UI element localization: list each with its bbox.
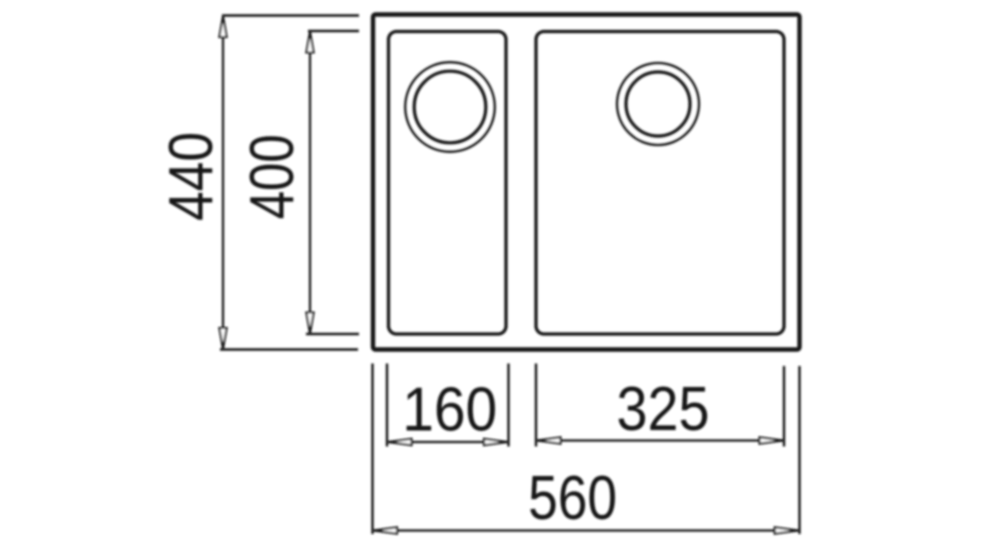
svg-text:160: 160 <box>402 376 497 445</box>
svg-text:440: 440 <box>157 132 226 221</box>
svg-text:325: 325 <box>617 375 710 444</box>
svg-text:560: 560 <box>528 464 617 533</box>
svg-text:400: 400 <box>238 134 307 219</box>
